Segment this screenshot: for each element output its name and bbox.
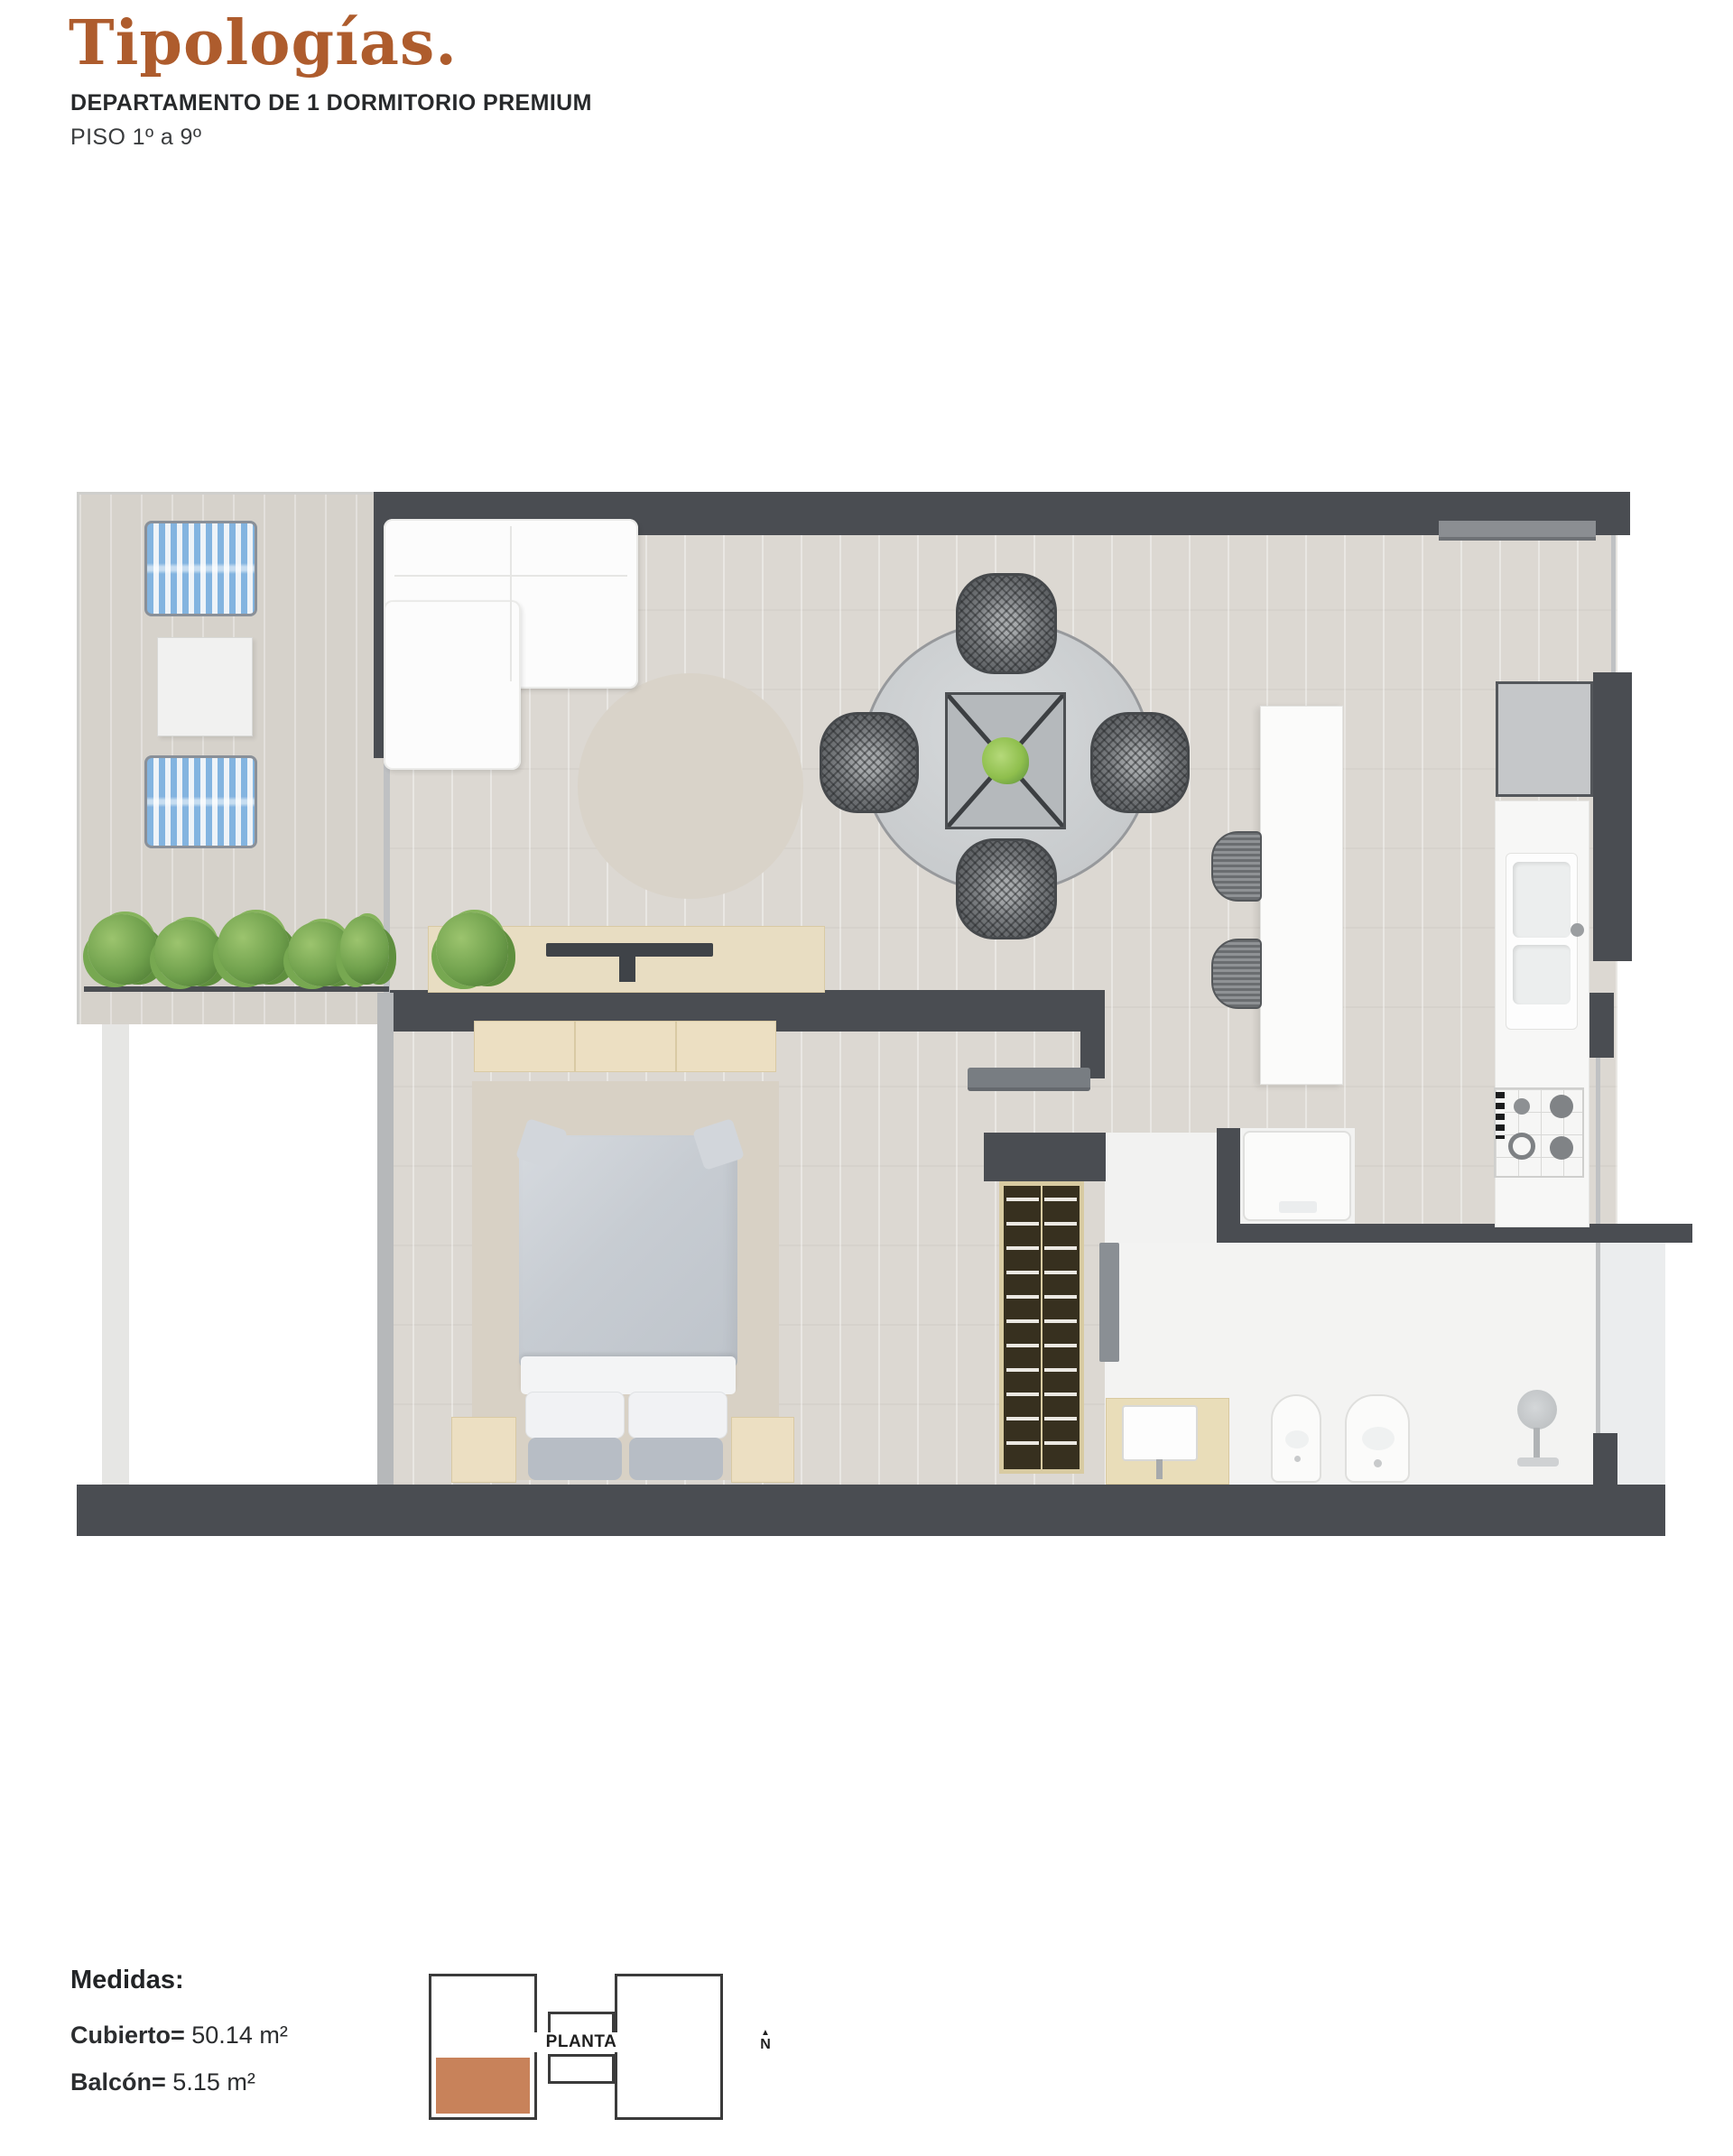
closet-top-wall bbox=[984, 1133, 1106, 1181]
sink-faucet bbox=[1571, 923, 1584, 937]
balcony-area-label: Balcón= bbox=[70, 2068, 166, 2096]
planter-plant-2 bbox=[154, 920, 221, 986]
dining-centerpiece-plant bbox=[982, 737, 1029, 784]
bathroom-door bbox=[1099, 1243, 1119, 1362]
dining-chair-left bbox=[820, 712, 919, 813]
refrigerator bbox=[1496, 681, 1593, 797]
kitchen-island bbox=[1260, 706, 1343, 1085]
balcony-table bbox=[157, 637, 253, 736]
keyplan-bridge-bottom bbox=[548, 2054, 615, 2084]
planter-trough bbox=[84, 986, 389, 992]
planter-plant-1 bbox=[88, 914, 158, 985]
balcony-area-line: Balcón= 5.15 m² bbox=[70, 2068, 255, 2096]
bath-sink-faucet bbox=[1156, 1459, 1163, 1479]
tv-stand-bracket bbox=[619, 957, 635, 982]
bedroom-terrace-window bbox=[377, 993, 394, 1485]
keyplan-label: PLANTA bbox=[533, 2032, 630, 2052]
laundry-appliance bbox=[1243, 1131, 1351, 1221]
bed-pillow-white-left bbox=[525, 1392, 625, 1439]
burner-large-2 bbox=[1550, 1136, 1573, 1160]
page-title: Tipologías. bbox=[69, 7, 458, 79]
balcony-sliding-door bbox=[384, 758, 390, 1024]
apartment-type-subtitle: DEPARTAMENTO DE 1 DORMITORIO PREMIUM bbox=[70, 90, 592, 116]
bidet-drain bbox=[1294, 1456, 1301, 1462]
wardrobe bbox=[999, 1181, 1084, 1474]
nightstand-right bbox=[731, 1417, 794, 1483]
bathroom-window bbox=[1596, 1243, 1600, 1433]
wardrobe-hangers-right bbox=[1044, 1189, 1076, 1466]
ac-unit bbox=[1439, 521, 1596, 541]
sofa-cushion-seam bbox=[510, 526, 512, 681]
floorplan bbox=[77, 492, 1697, 1561]
toilet bbox=[1345, 1394, 1410, 1483]
terrace-floor bbox=[93, 1024, 384, 1485]
living-rug bbox=[578, 673, 803, 899]
bidet bbox=[1271, 1394, 1321, 1483]
bed-pillow-gray-right bbox=[629, 1438, 723, 1480]
bottom-wall bbox=[77, 1485, 1665, 1536]
wardrobe-rail bbox=[1041, 1186, 1043, 1469]
nightstand-left bbox=[451, 1417, 516, 1483]
balcony-chair-top bbox=[144, 521, 257, 616]
shower-stem bbox=[1534, 1428, 1540, 1460]
wardrobe-hangers-left bbox=[1006, 1189, 1038, 1466]
appliance-handle bbox=[1279, 1201, 1317, 1213]
right-wall-mid bbox=[1589, 993, 1614, 1058]
bed-duvet bbox=[519, 1135, 737, 1368]
bath-sink bbox=[1122, 1405, 1198, 1461]
shower-base bbox=[1517, 1457, 1559, 1467]
kitchen-window bbox=[1596, 1058, 1600, 1224]
burner-ringed bbox=[1508, 1133, 1535, 1160]
dining-chair-top bbox=[956, 573, 1057, 674]
right-wall-upper bbox=[1593, 672, 1632, 961]
keyplan-right-building bbox=[615, 1974, 723, 2120]
keyplan-highlighted-unit bbox=[436, 2058, 530, 2114]
shower-head bbox=[1517, 1390, 1557, 1430]
measures-heading: Medidas: bbox=[70, 1966, 184, 1995]
bed-sheet-fold bbox=[521, 1356, 736, 1394]
north-arrow-icon: ▲ N bbox=[755, 2029, 776, 2052]
bar-stool-2 bbox=[1211, 939, 1262, 1009]
tv-screen bbox=[546, 943, 713, 957]
toilet-seat bbox=[1362, 1427, 1395, 1450]
dining-chair-bottom bbox=[956, 838, 1057, 939]
bedroom-sliding-door bbox=[968, 1068, 1090, 1091]
bedroom-dresser bbox=[474, 1021, 776, 1072]
floor-range-label: PISO 1º a 9º bbox=[70, 125, 201, 151]
sink-basin-2 bbox=[1513, 945, 1571, 1004]
hallway-floor bbox=[1105, 1133, 1217, 1243]
console-plant bbox=[436, 912, 508, 986]
right-wall-lower bbox=[1593, 1433, 1617, 1485]
kitchen-bath-wall bbox=[1217, 1224, 1692, 1243]
burner-small bbox=[1514, 1098, 1530, 1115]
burner-large-1 bbox=[1550, 1095, 1573, 1118]
balcony-area-value: 5.15 m² bbox=[166, 2068, 255, 2096]
dining-chair-right bbox=[1090, 712, 1190, 813]
planter-plant-3 bbox=[218, 912, 290, 985]
top-right-window bbox=[1611, 535, 1616, 672]
covered-area-value: 50.14 m² bbox=[185, 2022, 288, 2049]
covered-area-label: Cubierto= bbox=[70, 2022, 185, 2049]
stove-control-strip bbox=[1496, 1092, 1505, 1139]
north-label: N bbox=[760, 2037, 771, 2052]
covered-area-line: Cubierto= 50.14 m² bbox=[70, 2022, 288, 2050]
bidet-basin bbox=[1285, 1430, 1309, 1448]
balcony-chair-bottom bbox=[144, 755, 257, 848]
bar-stool-1 bbox=[1211, 831, 1262, 902]
toilet-button bbox=[1374, 1459, 1382, 1467]
bed-pillow-gray-left bbox=[528, 1438, 622, 1480]
bed-pillow-white-right bbox=[628, 1392, 727, 1439]
terrace-post bbox=[102, 1024, 129, 1485]
sink-basin-1 bbox=[1513, 862, 1571, 938]
sofa-chaise bbox=[384, 600, 521, 770]
planter-plant-5 bbox=[340, 916, 389, 985]
